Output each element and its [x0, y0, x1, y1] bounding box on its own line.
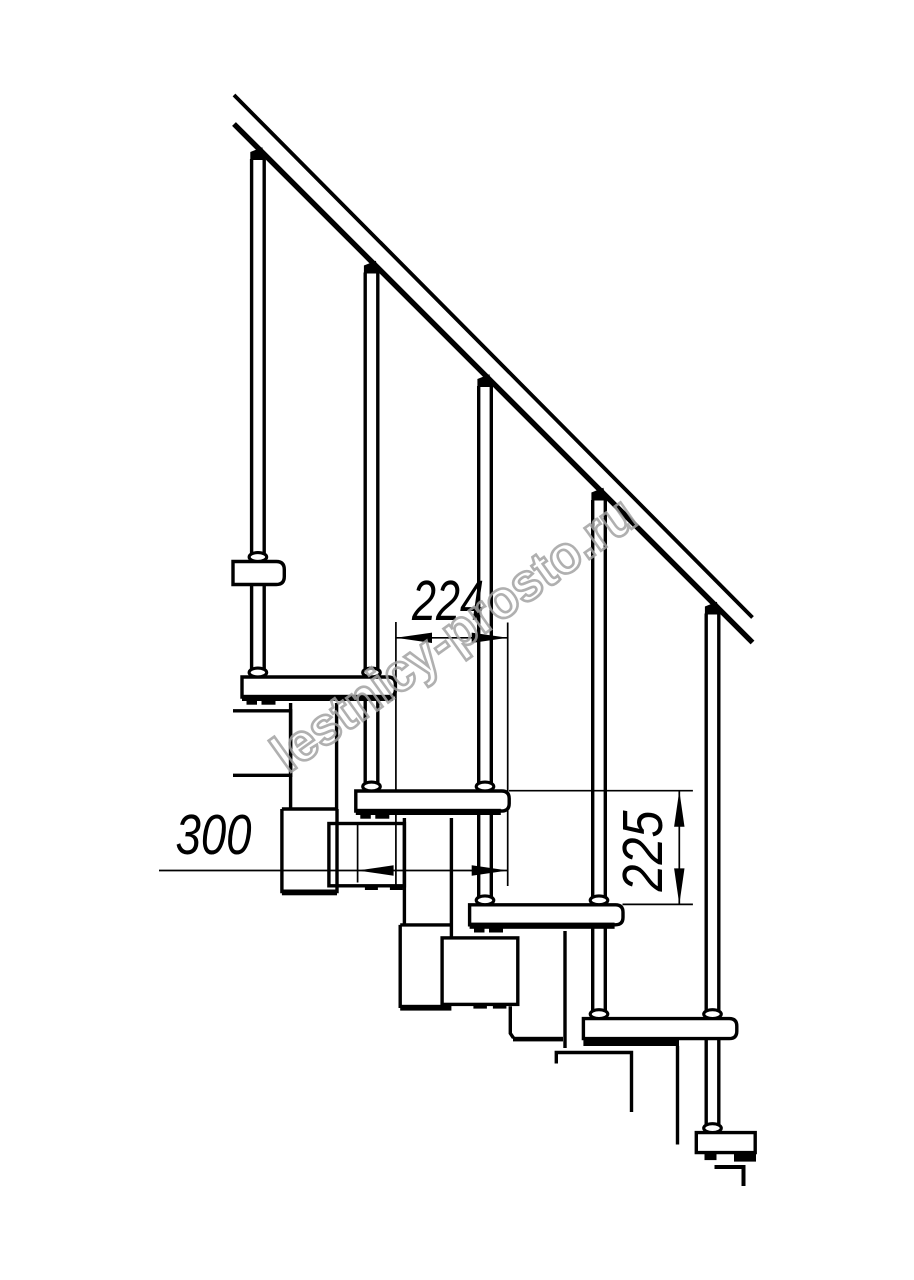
- svg-text:300: 300: [176, 803, 252, 867]
- svg-text:225: 225: [611, 810, 675, 892]
